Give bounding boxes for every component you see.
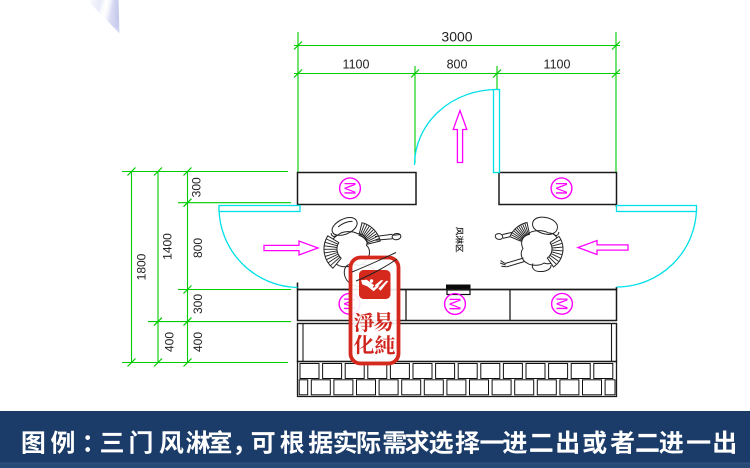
svg-text:400: 400 xyxy=(163,332,177,352)
svg-text:3000: 3000 xyxy=(441,29,472,45)
svg-text:M: M xyxy=(445,297,462,310)
svg-text:1400: 1400 xyxy=(161,233,175,260)
svg-text:M: M xyxy=(340,182,357,195)
svg-text:1100: 1100 xyxy=(343,58,370,72)
svg-text:M: M xyxy=(552,297,569,310)
svg-text:M: M xyxy=(552,182,569,195)
svg-text:300: 300 xyxy=(190,177,204,197)
svg-text:400: 400 xyxy=(191,332,205,352)
svg-text:800: 800 xyxy=(191,238,205,258)
svg-text:1800: 1800 xyxy=(135,253,149,280)
svg-text:300: 300 xyxy=(191,294,205,314)
svg-text:1100: 1100 xyxy=(544,58,571,72)
svg-text:800: 800 xyxy=(447,58,468,72)
